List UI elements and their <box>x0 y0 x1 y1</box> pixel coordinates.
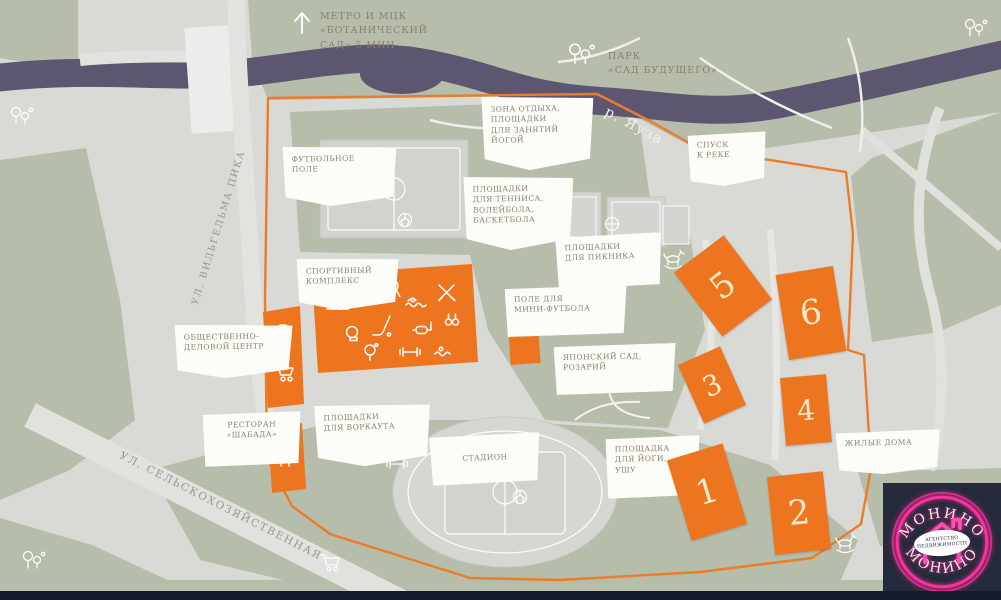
bottom-dark-strip <box>0 591 1001 600</box>
metro-arrow-icon <box>291 8 313 36</box>
building-number: 1 <box>691 470 723 515</box>
callout-mini-football: ПОЛЕ ДЛЯ МИНИ-ФУТБОЛА <box>505 285 628 337</box>
building-4-marker[interactable]: 4 <box>780 374 832 446</box>
agency-logo[interactable]: МОНИНО МОНИНО АГЕНТСТВО НЕДВИЖИМОСТИ <box>883 483 1001 600</box>
building-number: 5 <box>702 264 743 309</box>
masterplan-map: МЕТРО И МЦК «БОТАНИЧЕСКИЙ САД» 5 МИН ПАР… <box>0 0 1001 600</box>
callout-sport-complex: СПОРТИВНЫЙ КОМПЛЕКС <box>297 257 400 311</box>
map-base-layer <box>0 0 1001 600</box>
trees-icon <box>12 108 33 125</box>
callout-river-descent: СПУСК К РЕКЕ <box>688 131 767 186</box>
building-number: 6 <box>797 292 825 335</box>
building-number: 3 <box>697 366 727 403</box>
callout-housing: ЖИЛЫЕ ДОМА <box>836 429 941 475</box>
callout-business-center: ОБЩЕСТВЕННО- ДЕЛОВОЙ ЦЕНТР <box>175 323 294 379</box>
callout-football-field: ФУТБОЛЬНОЕ ПОЛЕ <box>282 145 397 207</box>
basketball-icon <box>606 218 619 231</box>
callout-japanese-garden: ЯПОНСКИЙ САД, РОЗАРИЙ <box>554 343 677 395</box>
callout-restaurant: РЕСТОРАН «ШАБАДА» <box>203 411 302 467</box>
metro-note: МЕТРО И МЦК «БОТАНИЧЕСКИЙ САД» 5 МИН <box>320 10 428 53</box>
park-note: ПАРК «САД БУДУЩЕГО» <box>608 50 718 79</box>
callout-picnic: ПЛОЩАДКИ ДЛЯ ПИКНИКА <box>555 232 663 290</box>
callout-rest-zone: ЗОНА ОТДЫХА, ПЛОЩАДКИ ДЛЯ ЗАНЯТИЙ ЙОГОЙ <box>481 95 594 171</box>
building-number: 2 <box>786 492 812 534</box>
callout-stadium: СТАДИОН <box>429 432 541 486</box>
building-number: 4 <box>796 393 817 427</box>
building-2-marker[interactable]: 2 <box>767 471 831 554</box>
